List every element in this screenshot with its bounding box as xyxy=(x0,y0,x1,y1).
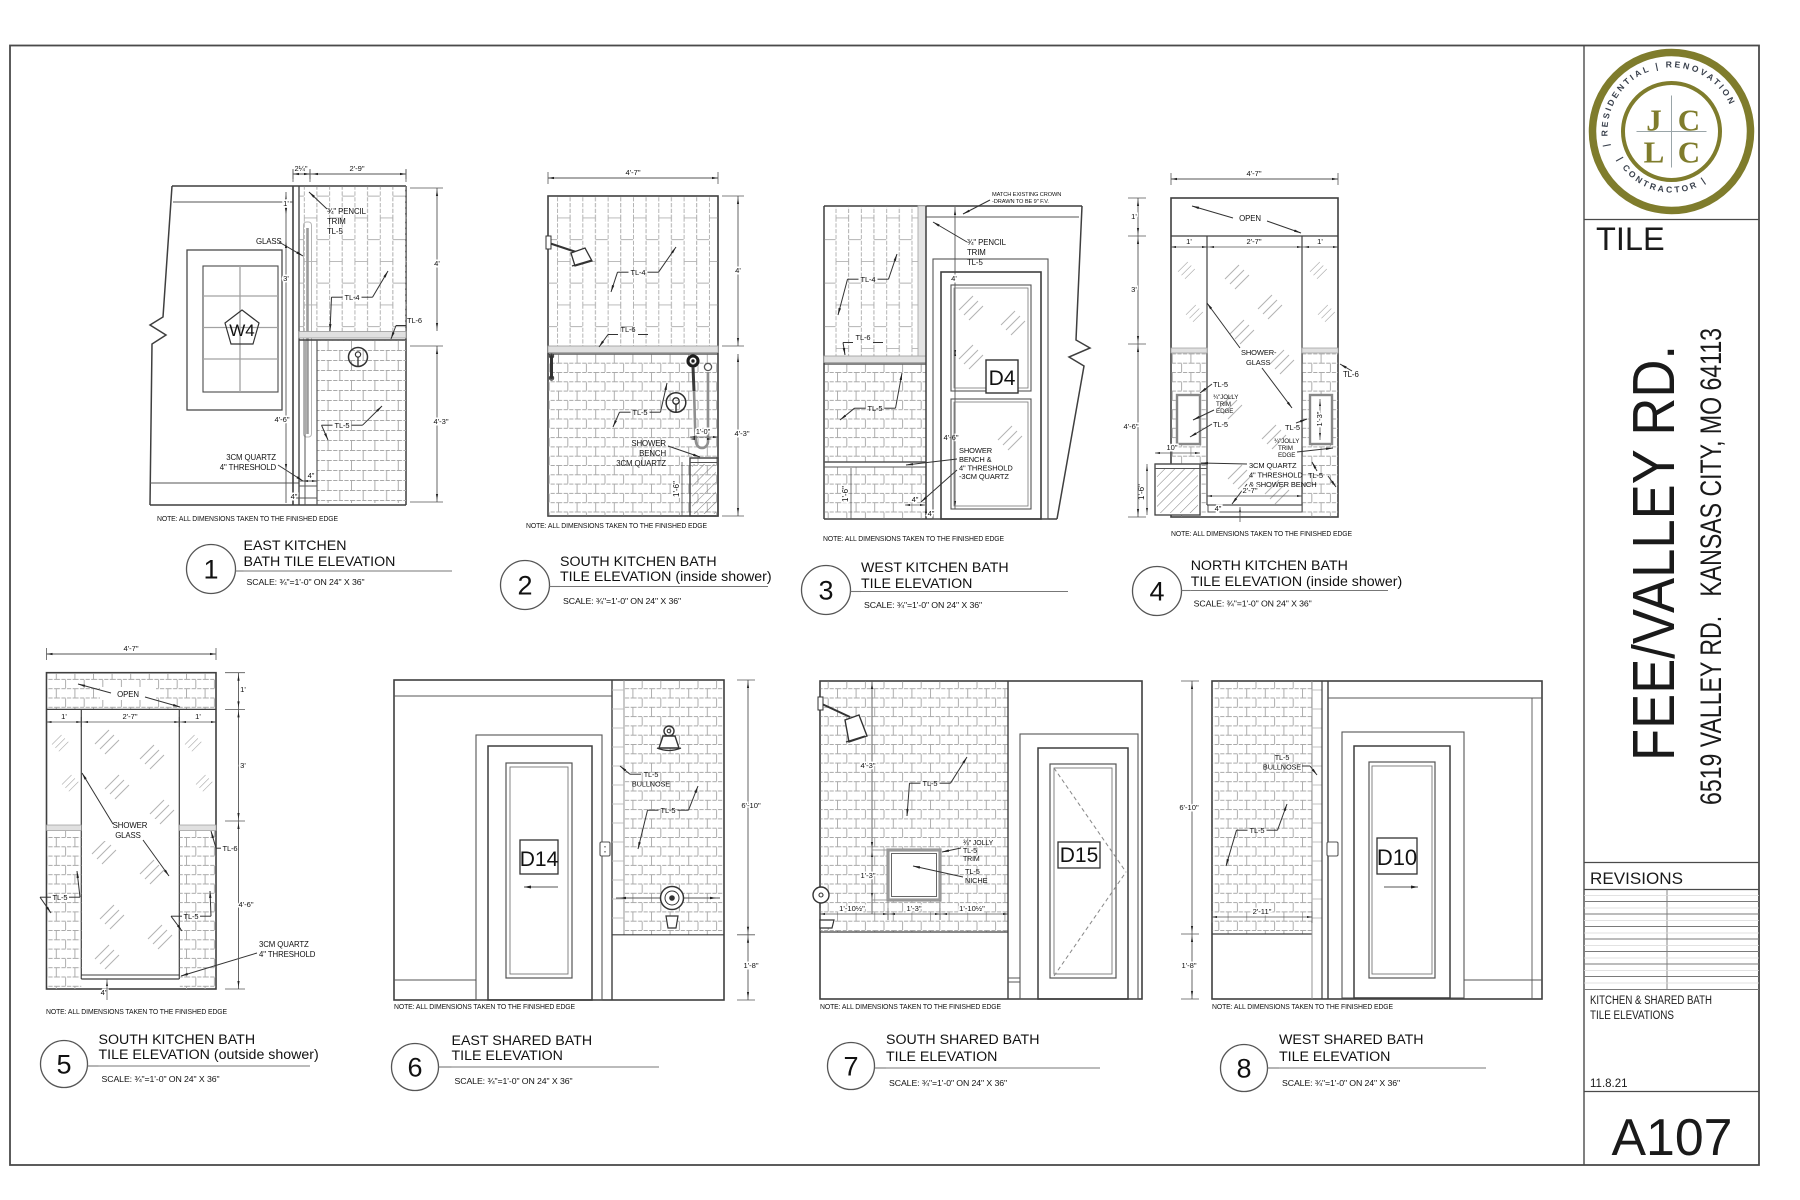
svg-text:SCALE: ¾"=1'-0" ON 24" X 36": SCALE: ¾"=1'-0" ON 24" X 36" xyxy=(102,1074,220,1084)
svg-text:TL-4: TL-4 xyxy=(861,275,876,284)
svg-text:C: C xyxy=(1678,103,1700,138)
svg-text:NICHE: NICHE xyxy=(965,876,988,885)
svg-text:SOUTH SHARED BATH: SOUTH SHARED BATH xyxy=(886,1032,1039,1048)
svg-text:GLASS: GLASS xyxy=(1246,358,1271,367)
svg-text:TL-5: TL-5 xyxy=(965,867,980,876)
svg-text:TILE ELEVATION: TILE ELEVATION xyxy=(886,1049,997,1065)
svg-text:NORTH KITCHEN BATH: NORTH KITCHEN BATH xyxy=(1191,558,1348,574)
svg-text:1': 1' xyxy=(1186,237,1192,246)
svg-text:4" THRESHOLD: 4" THRESHOLD xyxy=(220,463,277,472)
svg-text:4": 4" xyxy=(308,471,315,480)
svg-text:SCALE: ¾"=1'-0" ON 24" X 36": SCALE: ¾"=1'-0" ON 24" X 36" xyxy=(455,1076,573,1086)
svg-text:1'-8": 1'-8" xyxy=(743,961,758,970)
svg-text:TILE ELEVATIONS: TILE ELEVATIONS xyxy=(1590,1010,1674,1022)
svg-text:GLASS: GLASS xyxy=(115,831,141,840)
svg-text:SCALE: ¾"=1'-0" ON 24" X 36": SCALE: ¾"=1'-0" ON 24" X 36" xyxy=(1194,599,1312,609)
svg-text:D10: D10 xyxy=(1377,845,1417,870)
svg-text:TL-5: TL-5 xyxy=(1213,380,1228,389)
svg-text:OPEN: OPEN xyxy=(1239,214,1261,223)
svg-text:TRIM: TRIM xyxy=(963,856,980,863)
svg-text:TRIM: TRIM xyxy=(327,217,346,226)
svg-text:1'-8": 1'-8" xyxy=(1181,961,1196,970)
svg-text:2'-7": 2'-7" xyxy=(1246,237,1261,246)
svg-text:D14: D14 xyxy=(520,848,559,871)
svg-text:4': 4' xyxy=(735,266,741,275)
svg-text:FEE/VALLEY RD.: FEE/VALLEY RD. xyxy=(1621,345,1687,761)
svg-text:11.8.21: 11.8.21 xyxy=(1590,1078,1628,1090)
svg-text:SOUTH KITCHEN BATH: SOUTH KITCHEN BATH xyxy=(560,554,717,570)
svg-text:TL-5: TL-5 xyxy=(1250,826,1265,835)
svg-text:TL-5: TL-5 xyxy=(661,806,676,815)
svg-text:NOTE: ALL DIMENSIONS TAKEN TO: NOTE: ALL DIMENSIONS TAKEN TO THE FINISH… xyxy=(526,521,707,530)
svg-text:TL-5: TL-5 xyxy=(644,770,659,779)
svg-text:EDGE: EDGE xyxy=(1278,452,1295,459)
svg-text:TILE: TILE xyxy=(1596,221,1665,257)
svg-text:¾" PENCIL: ¾" PENCIL xyxy=(967,238,1007,247)
svg-text:& SHOWER BENCH: & SHOWER BENCH xyxy=(1249,480,1317,489)
svg-text:1': 1' xyxy=(283,199,289,208)
svg-text:6519 VALLEY RD. KANSAS CITY,: 6519 VALLEY RD. KANSAS CITY, MO 64113 xyxy=(1695,328,1728,805)
svg-text:J: J xyxy=(1646,103,1662,138)
svg-text:TL-5: TL-5 xyxy=(335,421,350,430)
svg-text:NOTE: ALL DIMENSIONS TAKEN TO: NOTE: ALL DIMENSIONS TAKEN TO THE FINISH… xyxy=(823,534,1004,543)
svg-text:4": 4" xyxy=(291,492,298,501)
svg-text:2: 2 xyxy=(517,571,532,601)
svg-text:1: 1 xyxy=(203,555,218,585)
svg-text:EAST KITCHEN: EAST KITCHEN xyxy=(244,538,347,554)
svg-text:4'-6": 4'-6" xyxy=(238,900,253,909)
svg-text:2'-9": 2'-9" xyxy=(349,164,364,173)
svg-text:4'-7": 4'-7" xyxy=(1246,169,1261,178)
svg-text:TILE ELEVATION: TILE ELEVATION xyxy=(1279,1049,1390,1065)
svg-text:TILE ELEVATION: TILE ELEVATION xyxy=(861,576,972,592)
svg-text:NOTE: ALL DIMENSIONS TAKEN TO: NOTE: ALL DIMENSIONS TAKEN TO THE FINISH… xyxy=(1212,1002,1393,1011)
svg-text:5: 5 xyxy=(56,1050,71,1080)
svg-text:TL-5: TL-5 xyxy=(963,848,977,855)
svg-text:TL-5: TL-5 xyxy=(967,258,983,267)
svg-text:SCALE: ¾"=1'-0" ON 24" X 36": SCALE: ¾"=1'-0" ON 24" X 36" xyxy=(864,600,982,610)
svg-text:2'-7": 2'-7" xyxy=(122,712,137,721)
svg-text:NOTE: ALL DIMENSIONS TAKEN TO: NOTE: ALL DIMENSIONS TAKEN TO THE FINISH… xyxy=(820,1002,1001,1011)
svg-text:TL-5: TL-5 xyxy=(1213,420,1228,429)
svg-text:TRIM: TRIM xyxy=(1216,401,1231,408)
svg-text:4': 4' xyxy=(951,274,957,283)
svg-text:TL-5: TL-5 xyxy=(53,893,68,902)
svg-text:4'-3": 4'-3" xyxy=(734,429,749,438)
svg-text:D15: D15 xyxy=(1060,844,1099,867)
svg-text:1'-3": 1'-3" xyxy=(1315,411,1324,426)
svg-text:1'-3": 1'-3" xyxy=(860,871,875,880)
svg-text:SHOWER: SHOWER xyxy=(631,439,666,448)
svg-text:6'-10": 6'-10" xyxy=(741,801,761,810)
svg-text:4" THRESHOLD: 4" THRESHOLD xyxy=(259,950,316,959)
svg-text:WEST SHARED BATH: WEST SHARED BATH xyxy=(1279,1032,1424,1048)
svg-text:TL-6: TL-6 xyxy=(856,333,871,342)
svg-text:2'-11": 2'-11" xyxy=(1253,907,1272,916)
svg-text:TILE ELEVATION: TILE ELEVATION xyxy=(452,1048,563,1064)
svg-text:TILE ELEVATION (outside shower: TILE ELEVATION (outside shower) xyxy=(99,1047,319,1063)
svg-text:BULLNOSE: BULLNOSE xyxy=(632,780,670,789)
svg-text:SHOWER-: SHOWER- xyxy=(1241,348,1277,357)
svg-text:WEST KITCHEN BATH: WEST KITCHEN BATH xyxy=(861,560,1009,576)
svg-text:TL-5: TL-5 xyxy=(1308,471,1323,480)
svg-text:TL-6: TL-6 xyxy=(1343,370,1359,379)
svg-text:TILE ELEVATION (inside shower): TILE ELEVATION (inside shower) xyxy=(560,569,772,585)
svg-text:¾"JOLLY: ¾"JOLLY xyxy=(1274,438,1300,445)
svg-text:D4: D4 xyxy=(989,367,1016,390)
svg-text:8: 8 xyxy=(1236,1054,1251,1084)
svg-text:TL-5: TL-5 xyxy=(327,227,343,236)
svg-text:3CM QUARTZ: 3CM QUARTZ xyxy=(259,940,309,949)
svg-text:TRIM: TRIM xyxy=(1278,445,1293,452)
svg-text:3': 3' xyxy=(1131,285,1137,294)
svg-text:SCALE: ¾"=1'-0" ON 24" X 36": SCALE: ¾"=1'-0" ON 24" X 36" xyxy=(1282,1078,1400,1088)
svg-text:MATCH EXISTING CROWN: MATCH EXISTING CROWN xyxy=(992,192,1061,198)
svg-text:NOTE: ALL DIMENSIONS TAKEN TO: NOTE: ALL DIMENSIONS TAKEN TO THE FINISH… xyxy=(46,1007,227,1016)
svg-text:A107: A107 xyxy=(1612,1109,1733,1167)
svg-text:1': 1' xyxy=(61,712,67,721)
svg-text:SCALE: ¾"=1'-0" ON 24" X 36": SCALE: ¾"=1'-0" ON 24" X 36" xyxy=(247,577,365,587)
svg-text:3CM QUARTZ: 3CM QUARTZ xyxy=(616,459,666,468)
svg-text:1'-6": 1'-6" xyxy=(672,481,681,497)
svg-text:EDGE: EDGE xyxy=(1216,408,1233,415)
svg-text:4": 4" xyxy=(912,495,919,504)
svg-text:3: 3 xyxy=(818,576,833,606)
svg-text:2'-7": 2'-7" xyxy=(1242,486,1257,495)
svg-text:TRIM: TRIM xyxy=(967,248,986,257)
svg-text:TILE ELEVATION (inside shower): TILE ELEVATION (inside shower) xyxy=(1191,574,1403,590)
svg-text:4'-3": 4'-3" xyxy=(860,761,875,770)
svg-text:SOUTH KITCHEN BATH: SOUTH KITCHEN BATH xyxy=(99,1032,256,1048)
svg-text:¾" PENCIL: ¾" PENCIL xyxy=(327,207,367,216)
svg-text:REVISIONS: REVISIONS xyxy=(1590,869,1683,888)
svg-text:C: C xyxy=(1678,135,1700,170)
svg-text:4": 4" xyxy=(928,509,935,518)
svg-text:TL-6: TL-6 xyxy=(223,844,238,853)
svg-text:¾" JOLLY: ¾" JOLLY xyxy=(963,840,994,847)
svg-text:3CM QUARTZ: 3CM QUARTZ xyxy=(226,453,276,462)
svg-text:TL-5: TL-5 xyxy=(868,404,883,413)
svg-text:BATH TILE ELEVATION: BATH TILE ELEVATION xyxy=(244,554,396,570)
svg-text:TL-4: TL-4 xyxy=(345,293,360,302)
svg-text:TL-5: TL-5 xyxy=(923,779,938,788)
svg-text:1'-3": 1'-3" xyxy=(906,904,921,913)
svg-text:OPEN: OPEN xyxy=(117,690,139,699)
svg-text:TL-5: TL-5 xyxy=(633,408,648,417)
svg-text:2¼": 2¼" xyxy=(294,164,307,173)
svg-text:10": 10" xyxy=(1166,443,1177,452)
svg-text:-3CM QUARTZ: -3CM QUARTZ xyxy=(959,472,1009,481)
svg-text:7: 7 xyxy=(843,1052,858,1082)
svg-text:1': 1' xyxy=(195,712,201,721)
svg-text:6'-10": 6'-10" xyxy=(1179,803,1199,812)
svg-text:SHOWER: SHOWER xyxy=(959,446,993,455)
svg-text:SCALE: ¾"=1'-0" ON 24" X 36": SCALE: ¾"=1'-0" ON 24" X 36" xyxy=(563,596,681,606)
svg-text:TL-4: TL-4 xyxy=(631,268,646,277)
svg-text:4" THRESHOLD: 4" THRESHOLD xyxy=(1249,471,1303,480)
svg-text:TL-5: TL-5 xyxy=(1275,753,1290,762)
svg-text:1'-10½": 1'-10½" xyxy=(839,904,865,913)
svg-text:TL-6: TL-6 xyxy=(407,316,422,325)
svg-text:1'-0": 1'-0" xyxy=(696,427,711,436)
svg-text:L: L xyxy=(1644,135,1665,170)
svg-text:4'-7": 4'-7" xyxy=(123,644,138,653)
svg-text:3': 3' xyxy=(283,274,289,283)
svg-text:W4: W4 xyxy=(229,321,255,340)
svg-text:NOTE: ALL DIMENSIONS TAKEN TO: NOTE: ALL DIMENSIONS TAKEN TO THE FINISH… xyxy=(157,514,338,523)
svg-text:BULLNOSE: BULLNOSE xyxy=(1263,763,1301,772)
svg-text:TL-5: TL-5 xyxy=(184,912,199,921)
svg-text:NOTE: ALL DIMENSIONS TAKEN TO: NOTE: ALL DIMENSIONS TAKEN TO THE FINISH… xyxy=(1171,529,1352,538)
svg-text:3CM QUARTZ: 3CM QUARTZ xyxy=(1249,461,1297,470)
svg-text:EAST SHARED BATH: EAST SHARED BATH xyxy=(452,1033,593,1049)
svg-text:4: 4 xyxy=(1149,577,1164,607)
svg-text:NOTE: ALL DIMENSIONS TAKEN TO: NOTE: ALL DIMENSIONS TAKEN TO THE FINISH… xyxy=(394,1002,575,1011)
svg-text:3': 3' xyxy=(240,761,246,770)
svg-text:4'-3": 4'-3" xyxy=(433,417,448,426)
svg-text:4": 4" xyxy=(1215,504,1222,513)
svg-text:1'-6": 1'-6" xyxy=(841,486,850,502)
svg-text:BENCH: BENCH xyxy=(639,449,666,458)
svg-text:-DRAWN TO BE 9" F.V.: -DRAWN TO BE 9" F.V. xyxy=(992,199,1049,205)
svg-text:4': 4' xyxy=(434,259,440,268)
svg-text:KITCHEN & SHARED BATH: KITCHEN & SHARED BATH xyxy=(1590,995,1712,1007)
svg-text:1': 1' xyxy=(1317,237,1323,246)
svg-text:6: 6 xyxy=(407,1053,422,1083)
svg-text:4'-7": 4'-7" xyxy=(625,168,640,177)
svg-text:1': 1' xyxy=(240,685,246,694)
svg-text:4'-6": 4'-6" xyxy=(274,415,289,424)
svg-text:¾"JOLLY: ¾"JOLLY xyxy=(1213,394,1239,401)
svg-text:4'-6": 4'-6" xyxy=(1123,422,1138,431)
svg-text:GLASS: GLASS xyxy=(256,237,282,246)
svg-text:1'-10½": 1'-10½" xyxy=(959,904,985,913)
svg-text:SHOWER: SHOWER xyxy=(113,821,148,830)
svg-text:SCALE: ¾"=1'-0" ON 24" X 36": SCALE: ¾"=1'-0" ON 24" X 36" xyxy=(889,1078,1007,1088)
svg-text:TL-6: TL-6 xyxy=(621,325,636,334)
svg-text:TL-5: TL-5 xyxy=(1285,423,1300,432)
svg-text:1': 1' xyxy=(1131,212,1137,221)
